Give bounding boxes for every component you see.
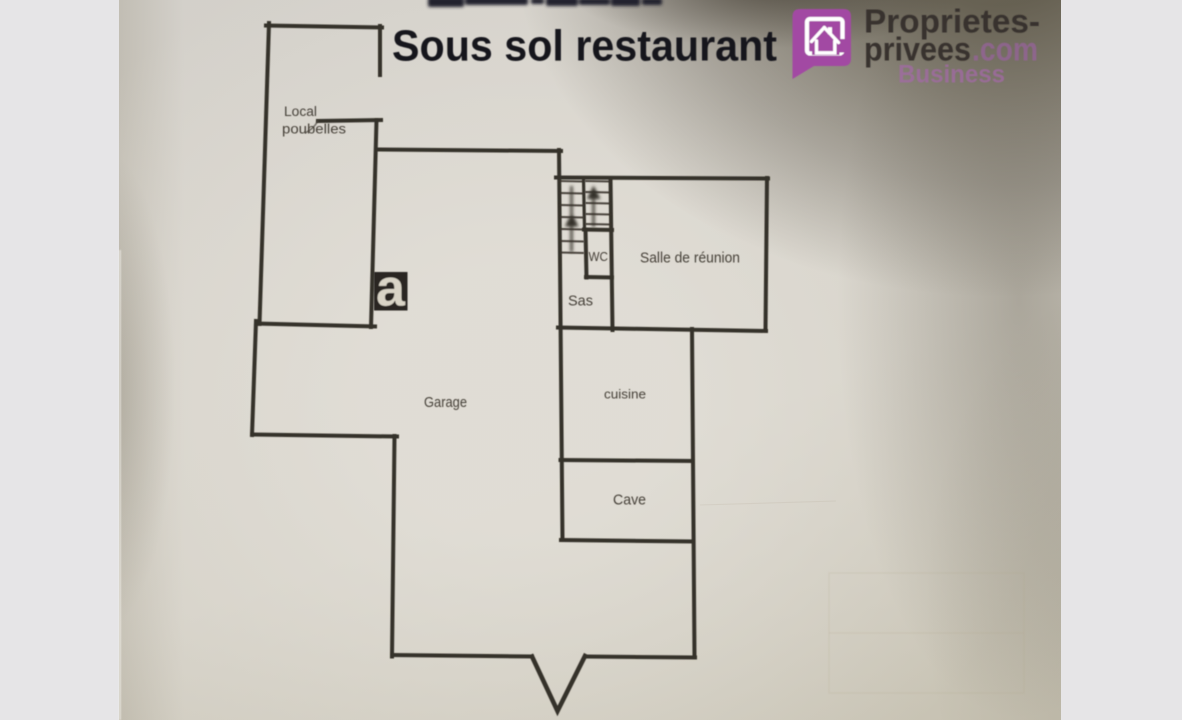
svg-text:Sous sol restaurant: Sous sol restaurant: [392, 23, 777, 71]
svg-text:Salle de réunion: Salle de réunion: [640, 251, 740, 267]
svg-text:a: a: [376, 260, 406, 318]
svg-text:Cave: Cave: [613, 493, 646, 509]
svg-text:WC: WC: [589, 250, 609, 264]
svg-text:Business: Business: [898, 61, 1005, 89]
svg-text:poubelles: poubelles: [282, 122, 346, 137]
svg-text:cuisine: cuisine: [604, 387, 646, 402]
svg-text:Sas: Sas: [568, 294, 593, 310]
svg-text:Garage: Garage: [424, 394, 467, 411]
svg-text:Local: Local: [284, 104, 317, 119]
